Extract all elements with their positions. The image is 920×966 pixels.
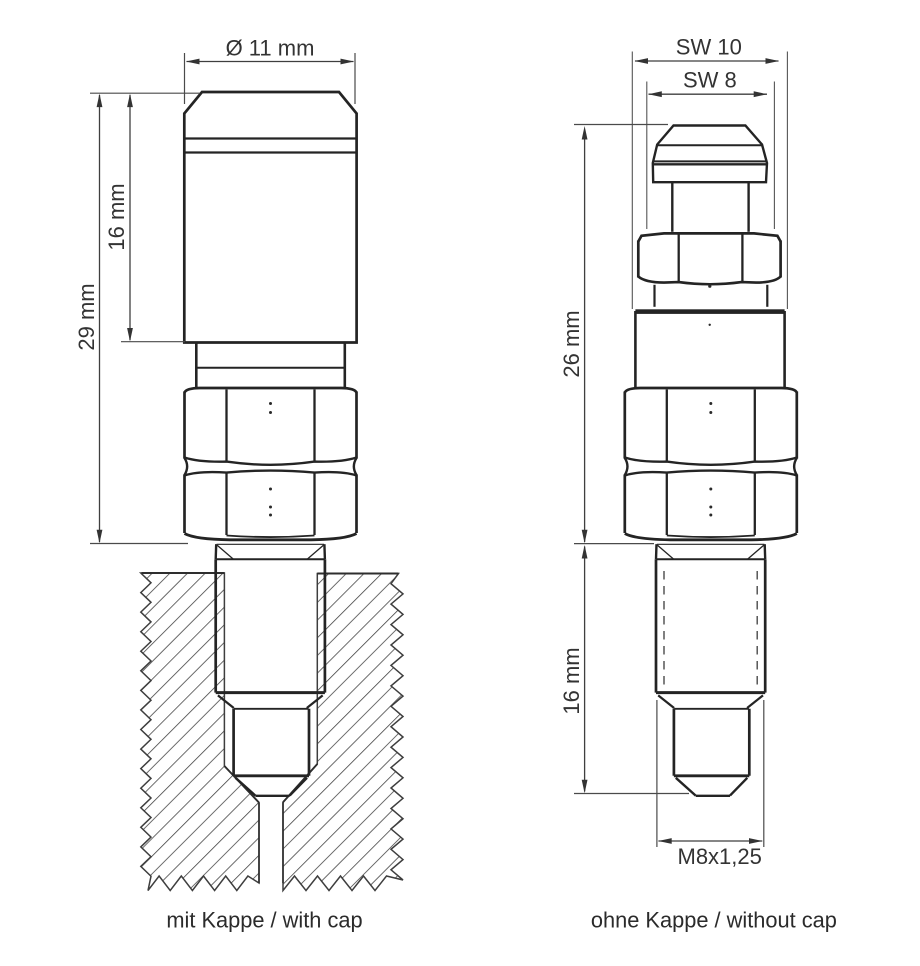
svg-text:16 mm: 16 mm <box>559 647 584 714</box>
svg-text:29 mm: 29 mm <box>74 283 99 350</box>
svg-text:26 mm: 26 mm <box>559 310 584 377</box>
svg-text:mit Kappe / with cap: mit Kappe / with cap <box>166 908 362 933</box>
svg-text:16 mm: 16 mm <box>104 183 129 250</box>
svg-text:M8x1,25: M8x1,25 <box>678 844 762 869</box>
svg-text:SW 10: SW 10 <box>676 35 742 60</box>
svg-text:Ø 11 mm: Ø 11 mm <box>226 36 315 61</box>
svg-text:ohne Kappe / without cap: ohne Kappe / without cap <box>591 908 837 933</box>
svg-text:SW 8: SW 8 <box>683 68 737 93</box>
